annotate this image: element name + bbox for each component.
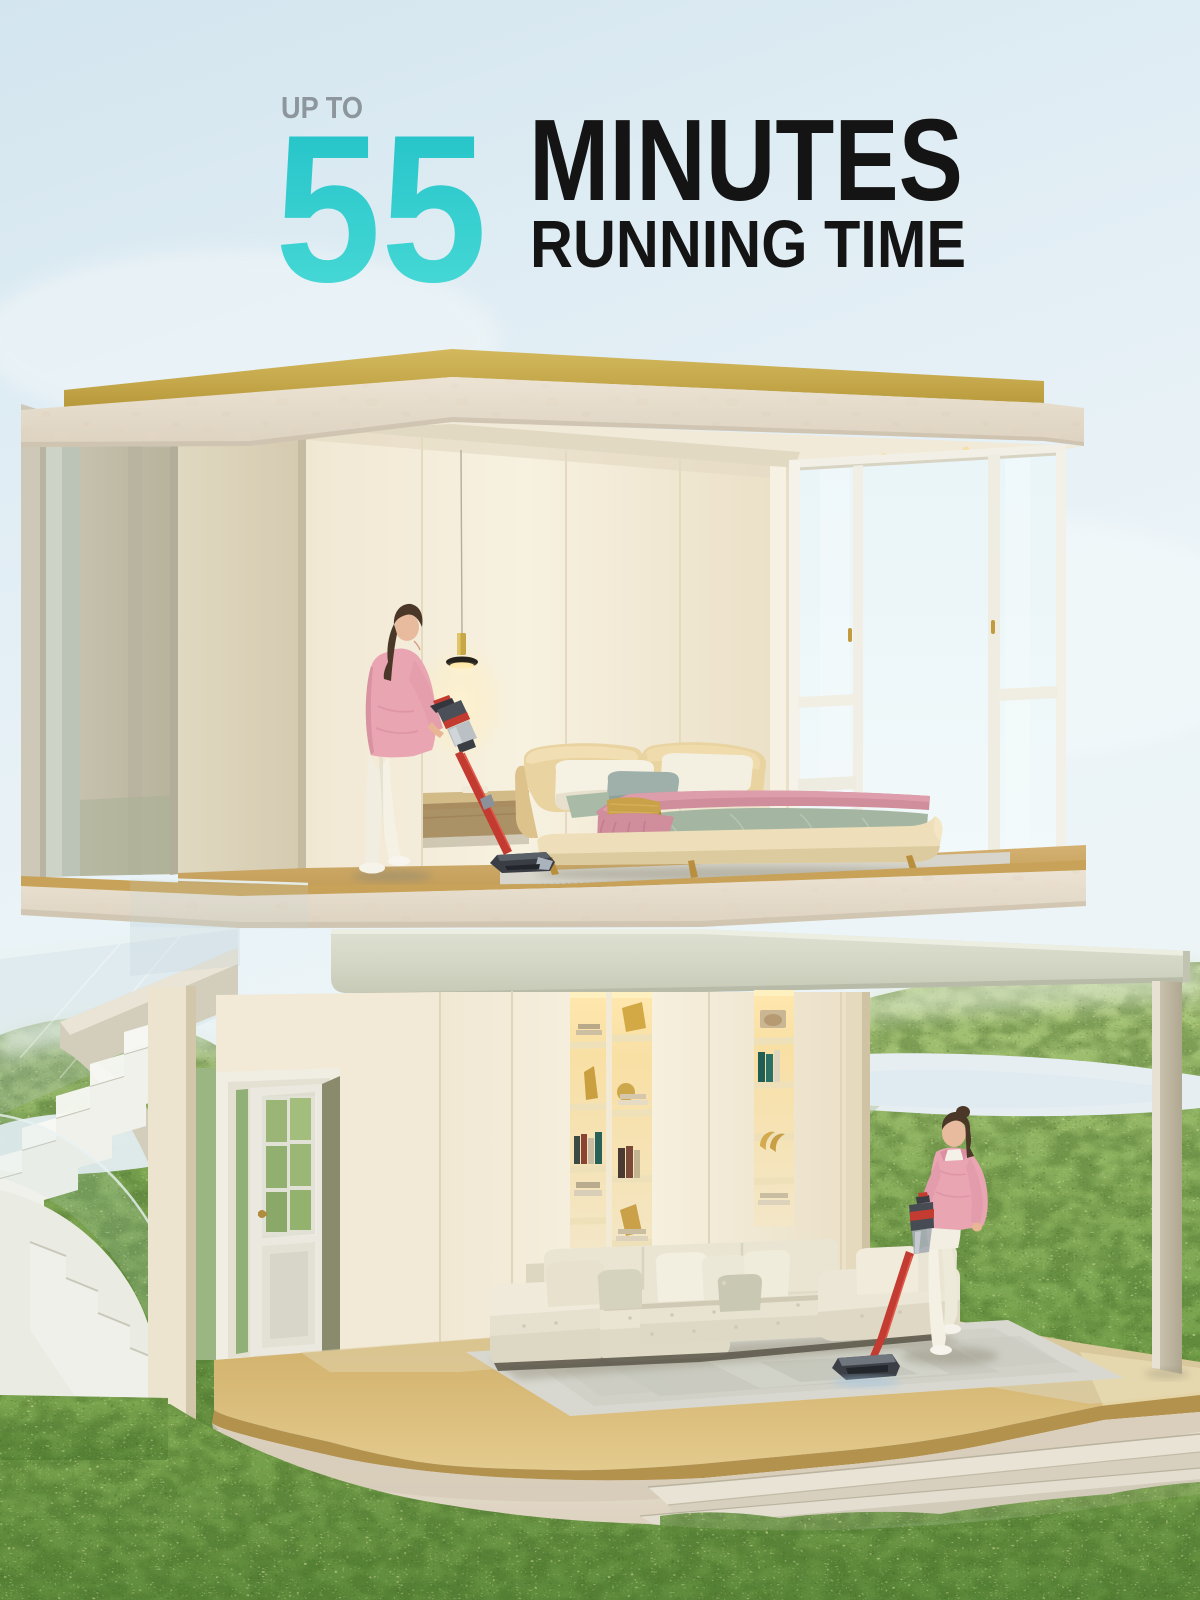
svg-text:MINUTES: MINUTES — [529, 95, 963, 225]
svg-text:55: 55 — [275, 91, 487, 326]
svg-text:RUNNING TIME: RUNNING TIME — [530, 207, 966, 282]
